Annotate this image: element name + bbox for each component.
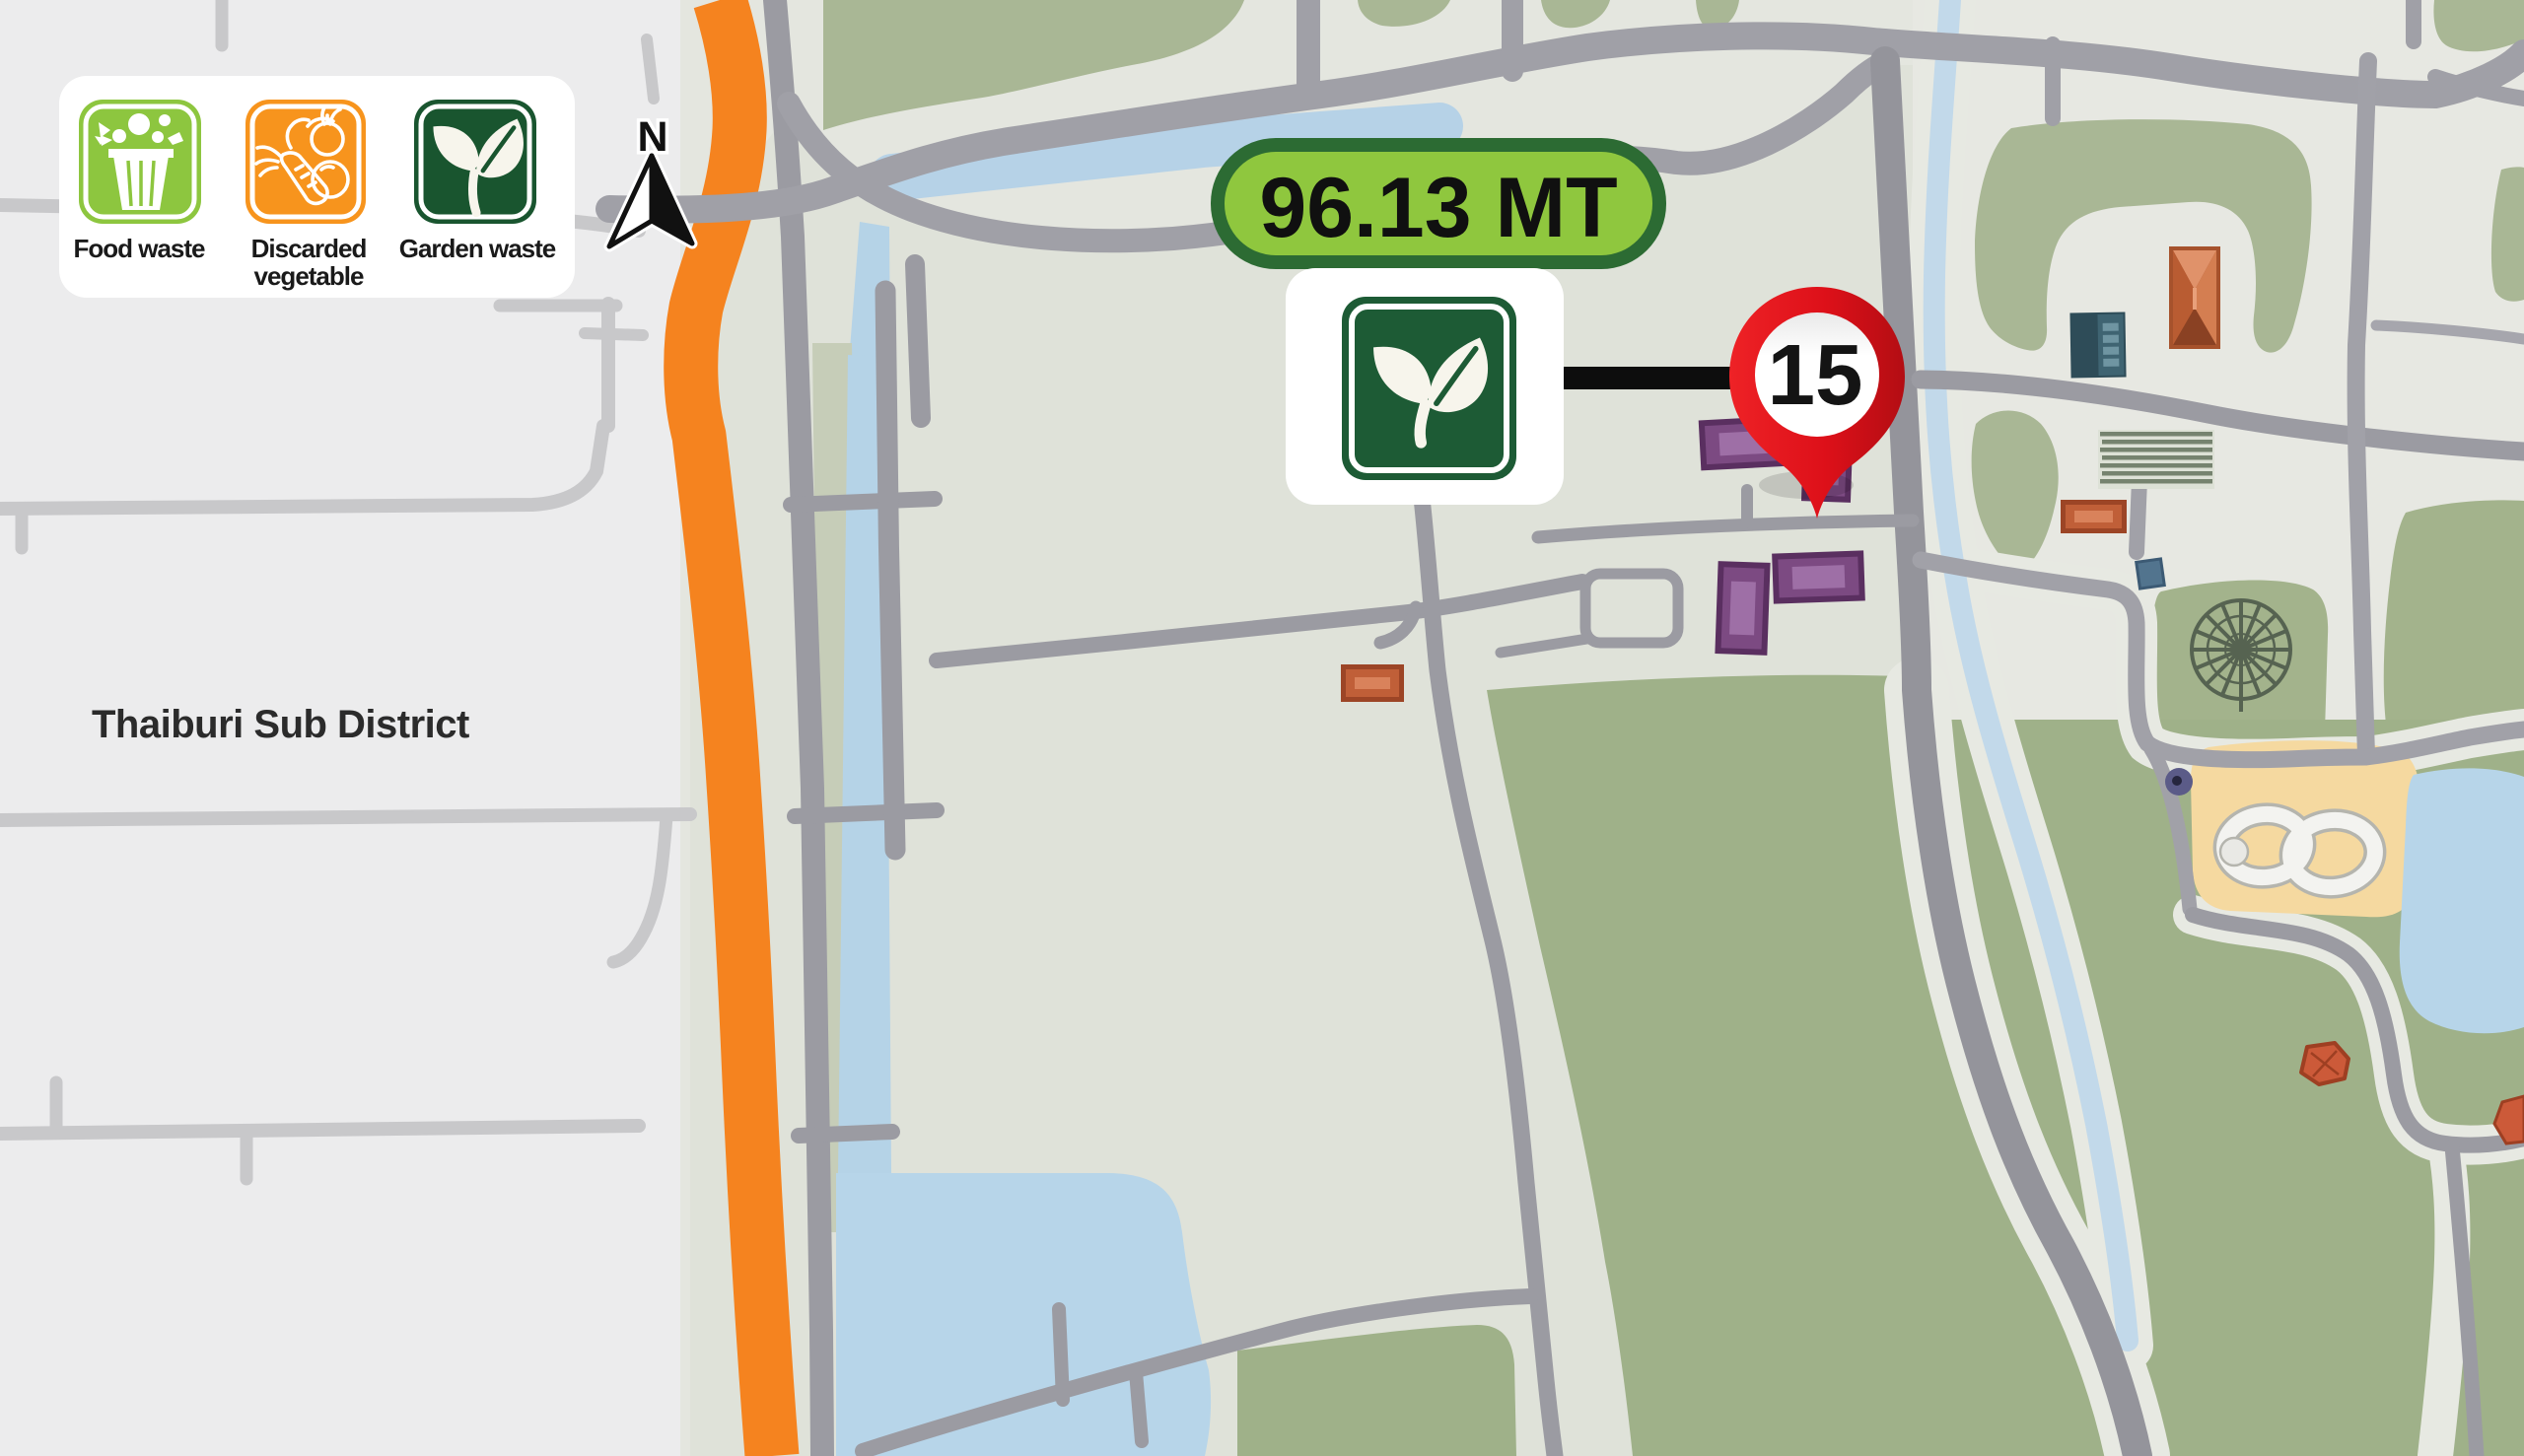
svg-text:vegetable: vegetable [254, 261, 364, 291]
svg-text:Discarded: Discarded [251, 234, 367, 263]
svg-text:Thaiburi Sub District: Thaiburi Sub District [92, 703, 469, 746]
svg-text:Food waste: Food waste [73, 234, 205, 263]
svg-text:15: 15 [1768, 327, 1863, 423]
svg-text:Garden waste: Garden waste [399, 234, 556, 263]
svg-text:96.13 MT: 96.13 MT [1259, 161, 1617, 255]
